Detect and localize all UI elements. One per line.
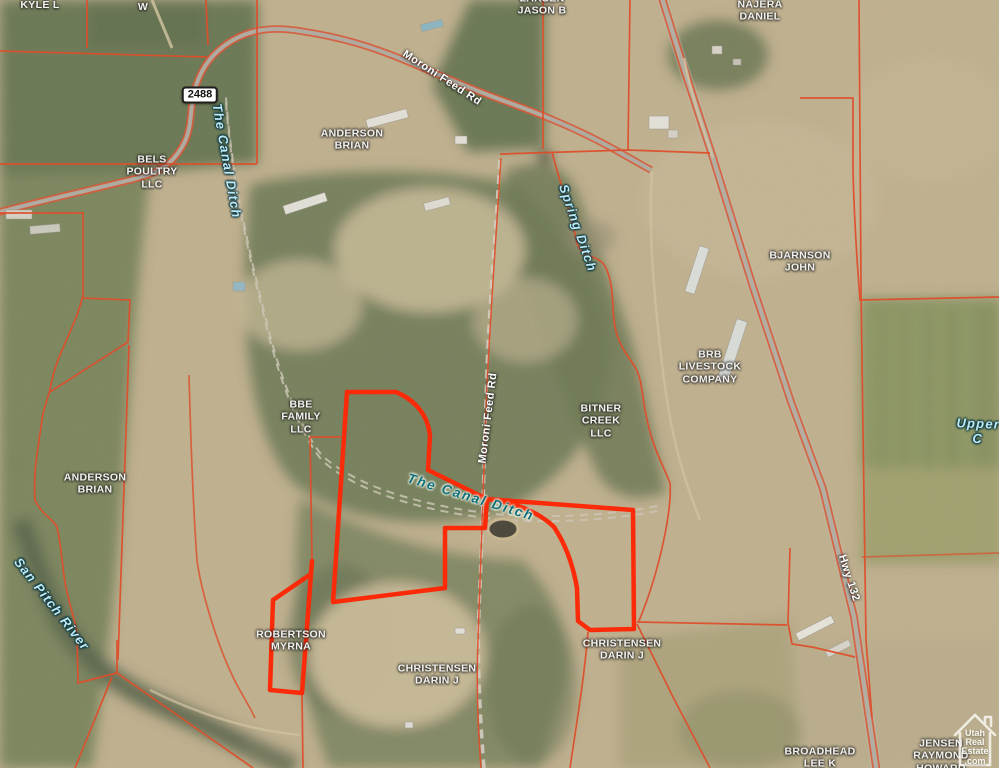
route-shield-2488: 2488 <box>182 87 218 104</box>
imagery-grain <box>0 0 999 768</box>
route-shield-number: 2488 <box>188 89 212 101</box>
logo-line: .com <box>964 756 985 766</box>
map-graphics <box>0 0 999 768</box>
utah-real-estate-logo: Utah Real Estate .com <box>952 712 998 768</box>
logo-wordmark: Utah Real Estate .com <box>952 729 998 766</box>
aerial-parcel-map[interactable]: KYLE LWLARSEN JASON BNAJERA DANIELBELS P… <box>0 0 999 768</box>
